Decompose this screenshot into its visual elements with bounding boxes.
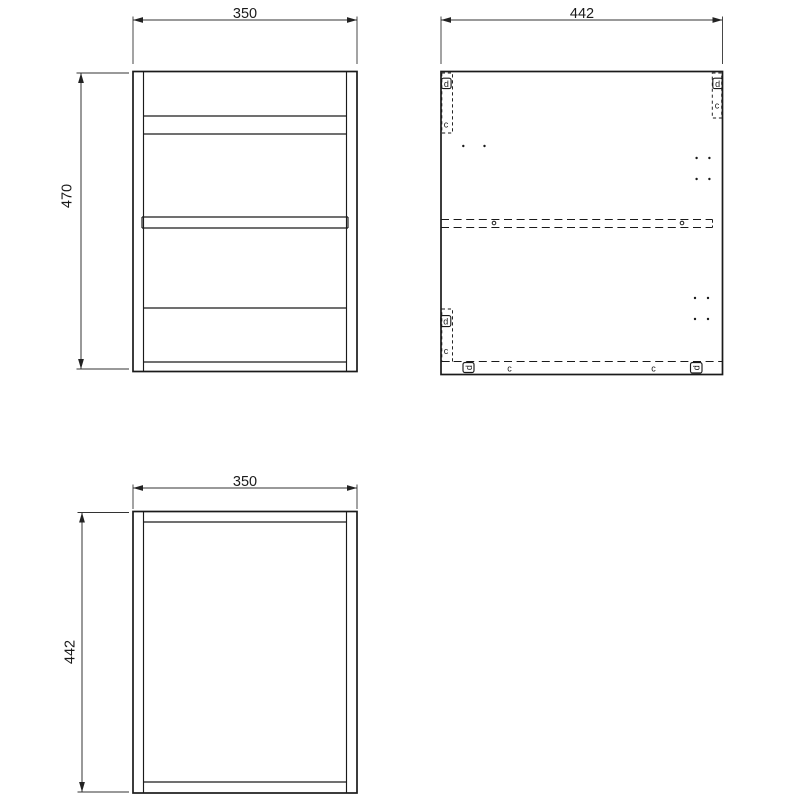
pilot-hole-dot: [462, 145, 464, 147]
shelf-hidden-lines: [441, 220, 713, 228]
dim-top-depth-label: 442: [63, 640, 79, 664]
arrowhead-icon: [79, 513, 85, 523]
top-width-dimension: 350: [133, 474, 357, 509]
arrowhead-icon: [713, 17, 723, 23]
fitting-marker-top-left: d c: [442, 73, 453, 133]
top-depth-dimension: 442: [63, 513, 130, 793]
arrowhead-icon: [133, 17, 143, 23]
fitting-marker-top-right: d c: [712, 73, 722, 118]
side-view: 442 d c d c: [441, 6, 723, 375]
pilot-hole-dot: [708, 157, 710, 159]
arrowhead-icon: [78, 359, 84, 369]
dim-top-width-label: 350: [233, 474, 257, 490]
dim-front-height-label: 470: [60, 184, 76, 208]
pilot-hole-dot: [695, 157, 697, 159]
front-outline: [133, 72, 357, 372]
dowel-symbol-label: c: [444, 120, 449, 130]
pilot-hole-dot: [483, 145, 485, 147]
dowel-symbol-label: c: [715, 101, 720, 111]
pilot-hole-dot: [694, 318, 696, 320]
arrowhead-icon: [441, 17, 451, 23]
front-view: 350 470: [60, 6, 358, 372]
pilot-hole-dot: [708, 178, 710, 180]
dowel-symbol-label: c: [651, 363, 656, 373]
pilot-hole-dot: [694, 297, 696, 299]
dim-side-width-label: 442: [570, 6, 594, 22]
arrowhead-icon: [347, 485, 357, 491]
arrowhead-icon: [133, 485, 143, 491]
dim-front-width-label: 350: [233, 6, 257, 22]
top-view: 350 442: [63, 474, 358, 793]
pilot-hole-dot: [695, 178, 697, 180]
dowel-symbol-label: c: [444, 346, 449, 356]
front-width-dimension: 350: [133, 6, 357, 64]
screw-mark-icon: [680, 221, 684, 225]
technical-drawing-canvas: 350 470: [0, 0, 800, 800]
cam-symbol-label: d: [443, 316, 448, 326]
screw-mark-icon: [492, 221, 496, 225]
arrowhead-icon: [78, 73, 84, 83]
side-width-dimension: 442: [441, 6, 723, 64]
pilot-hole-dot: [707, 297, 709, 299]
cam-symbol-label: d: [464, 365, 474, 370]
pilot-hole-dots: [462, 145, 711, 320]
fitting-row-bottom: d c c d: [463, 363, 702, 374]
dowel-symbol-label: c: [507, 363, 512, 373]
arrowhead-icon: [79, 782, 85, 792]
cam-symbol-label: d: [692, 365, 702, 370]
pilot-hole-dot: [707, 318, 709, 320]
arrowhead-icon: [347, 17, 357, 23]
top-outline: [133, 512, 357, 794]
drawing-page: 350 470: [0, 0, 800, 800]
cam-symbol-label: d: [715, 79, 720, 89]
cam-symbol-label: d: [444, 79, 449, 89]
front-height-dimension: 470: [60, 73, 130, 369]
fitting-marker-bottom-left: d c: [441, 309, 453, 362]
